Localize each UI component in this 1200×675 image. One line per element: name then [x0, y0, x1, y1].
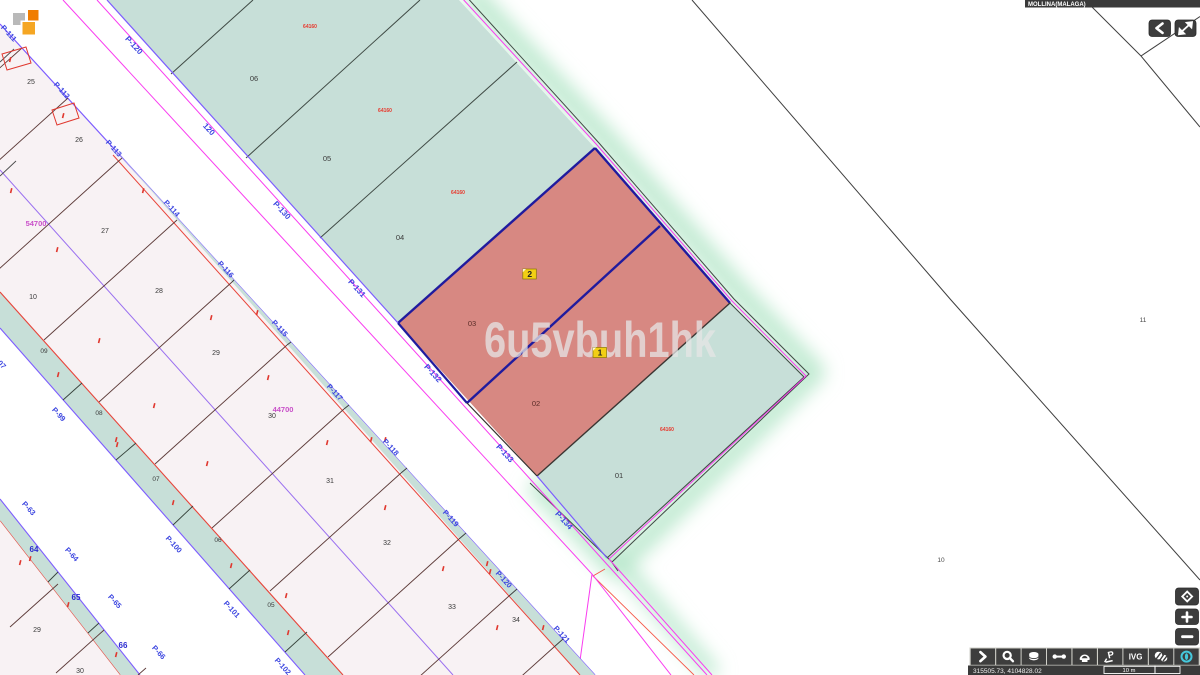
svg-text:64160: 64160 [451, 190, 465, 196]
svg-text:03: 03 [468, 319, 476, 328]
svg-text:26: 26 [75, 137, 83, 144]
svg-text:1: 1 [598, 348, 603, 358]
svg-text:29: 29 [212, 350, 220, 357]
svg-text:27: 27 [101, 228, 109, 235]
svg-text:IVG: IVG [1129, 653, 1143, 662]
svg-text:64160: 64160 [303, 24, 317, 30]
svg-text:06: 06 [214, 537, 222, 544]
svg-text:29: 29 [33, 627, 41, 634]
svg-text:05: 05 [267, 602, 275, 609]
svg-text:01: 01 [615, 471, 623, 480]
svg-text:06: 06 [250, 74, 258, 83]
svg-text:65: 65 [72, 593, 81, 602]
svg-text:10 m: 10 m [1123, 668, 1136, 674]
svg-text:6u5vbuh1hk: 6u5vbuh1hk [484, 312, 716, 368]
svg-text:2: 2 [527, 269, 532, 279]
svg-text:31: 31 [326, 478, 334, 485]
svg-text:30: 30 [268, 413, 276, 420]
svg-text:25: 25 [27, 79, 35, 86]
svg-text:64160: 64160 [660, 427, 674, 433]
svg-text:07: 07 [152, 476, 160, 483]
svg-text:64: 64 [30, 545, 39, 554]
svg-text:05: 05 [323, 154, 331, 163]
svg-text:54700: 54700 [26, 219, 47, 228]
svg-text:30: 30 [76, 668, 84, 675]
svg-text:64160: 64160 [378, 108, 392, 114]
svg-text:04: 04 [396, 233, 404, 242]
svg-text:10: 10 [937, 557, 945, 564]
svg-text:32: 32 [383, 540, 391, 547]
svg-text:08: 08 [95, 410, 103, 417]
svg-text:09: 09 [40, 348, 48, 355]
svg-text:MOLLINA(MALAGA): MOLLINA(MALAGA) [1028, 2, 1086, 8]
svg-text:34: 34 [512, 617, 520, 624]
svg-text:10: 10 [29, 294, 37, 301]
svg-text:02: 02 [532, 399, 540, 408]
svg-text:33: 33 [448, 604, 456, 611]
svg-text:315505.73, 4104828.02: 315505.73, 4104828.02 [973, 668, 1042, 675]
svg-text:11: 11 [1140, 317, 1147, 324]
svg-text:28: 28 [155, 288, 163, 295]
svg-text:44700: 44700 [273, 405, 294, 414]
svg-text:66: 66 [119, 641, 128, 650]
